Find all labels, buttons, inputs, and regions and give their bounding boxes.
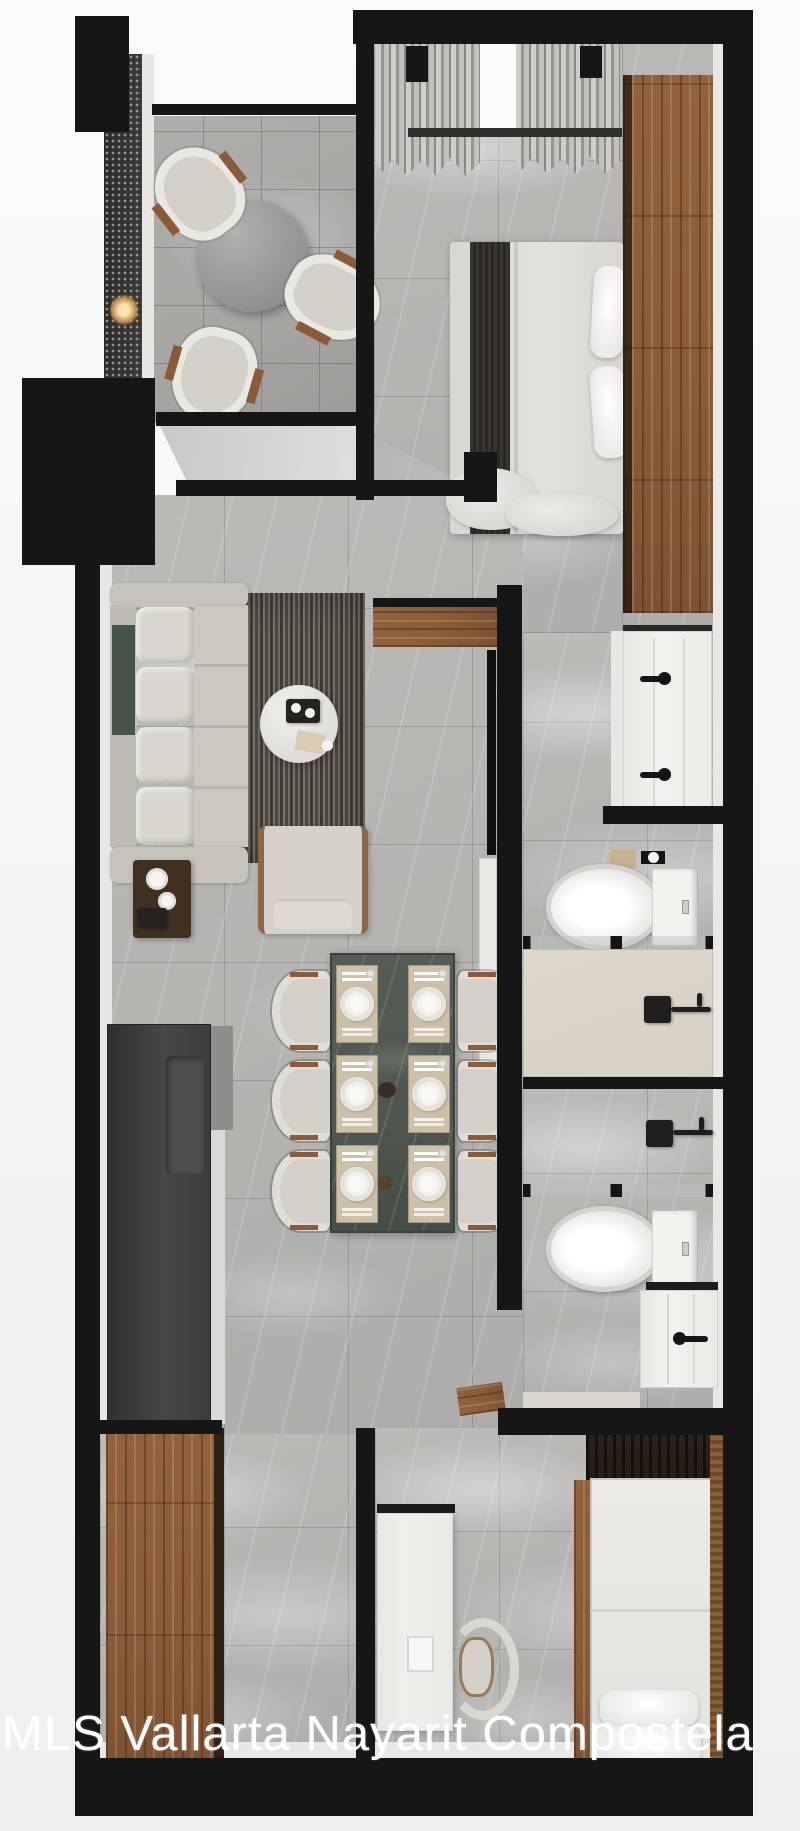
wall-tv xyxy=(487,650,496,855)
sofa-throw-blanket xyxy=(112,625,135,735)
faucet xyxy=(640,772,666,778)
cup xyxy=(305,708,315,718)
place-setting xyxy=(336,1145,378,1223)
wall-lamp xyxy=(110,294,138,326)
shower-head xyxy=(646,1120,673,1147)
wall-bathrooms-divider xyxy=(523,1077,723,1089)
wall-corridor xyxy=(497,585,522,1310)
wall-bedroom-left xyxy=(356,14,374,500)
sliding-door-frame-top xyxy=(156,412,358,426)
dining-chair xyxy=(272,1151,330,1231)
shower-valve xyxy=(699,1117,704,1131)
right-baseboard xyxy=(713,44,723,1410)
shower-arm xyxy=(673,1130,713,1135)
wall-bath1-divider xyxy=(603,806,723,824)
window-light xyxy=(480,44,516,132)
wall-closet-top xyxy=(100,1420,222,1434)
wall-bottom xyxy=(75,1758,753,1816)
sofa-back-cushion xyxy=(136,607,194,663)
counter-end-top xyxy=(211,1026,233,1130)
door-jamb xyxy=(464,452,497,502)
wall-left-mass xyxy=(22,378,155,565)
place-setting xyxy=(336,965,378,1043)
curtain-left xyxy=(376,44,480,176)
sofa xyxy=(110,583,248,883)
kitchen-sink xyxy=(166,1056,204,1174)
desk-accessory xyxy=(407,1636,434,1672)
place-setting xyxy=(408,1055,450,1133)
master-wardrobe xyxy=(623,75,713,613)
curtain-bracket xyxy=(406,46,428,82)
vanity-shadow xyxy=(646,1282,718,1290)
wall-top xyxy=(353,10,753,44)
faucet xyxy=(678,1336,708,1342)
desk xyxy=(377,1513,453,1731)
armchair xyxy=(258,826,368,934)
console-back-edge xyxy=(373,598,497,607)
shower-glass-partition xyxy=(523,1184,713,1197)
wardrobe-shadow-edge xyxy=(623,75,632,613)
bed-pillow xyxy=(590,265,627,359)
window-sill xyxy=(408,128,622,137)
coffee-table xyxy=(260,685,338,763)
curtain-right xyxy=(516,44,620,174)
wall-right-outer xyxy=(723,14,753,1815)
sofa-seat xyxy=(194,605,248,847)
shower-head xyxy=(644,996,671,1023)
place-setting xyxy=(408,1145,450,1223)
cup xyxy=(291,703,301,713)
shower-glass-partition xyxy=(523,936,713,949)
toilet xyxy=(546,1206,698,1292)
bedroom2-wardrobe xyxy=(586,1428,714,1480)
sofa-back-cushion xyxy=(136,727,194,783)
plate xyxy=(146,868,168,890)
table-centerpiece xyxy=(377,1176,393,1190)
wall-balcony-corner xyxy=(75,16,129,132)
sofa-back-cushion xyxy=(136,787,194,845)
dining-chair xyxy=(272,1061,330,1141)
dining-chair xyxy=(272,971,330,1051)
vanity-side xyxy=(611,631,623,817)
shower1-floor xyxy=(523,949,713,1077)
counter-edge xyxy=(211,1130,225,1424)
wall-left-outer xyxy=(75,565,100,1815)
shower-valve xyxy=(697,993,702,1007)
cup xyxy=(322,740,333,751)
balcony-railing xyxy=(152,104,360,115)
desk-chair xyxy=(447,1618,519,1720)
sofa-armrest xyxy=(110,583,248,607)
faucet xyxy=(640,676,666,682)
duvet-drape xyxy=(506,492,618,536)
table-centerpiece xyxy=(378,1082,396,1098)
sliding-door-frame-bottom xyxy=(176,480,466,496)
sofa-back-cushion xyxy=(136,667,194,723)
place-setting xyxy=(336,1055,378,1133)
wall-bedroom2-top xyxy=(498,1408,733,1435)
curtain-bracket xyxy=(580,46,602,78)
shower-arm xyxy=(671,1007,711,1012)
bathroom1-vanity xyxy=(623,631,712,817)
place-setting xyxy=(408,965,450,1043)
tv-console xyxy=(373,607,497,647)
desk-back-edge xyxy=(377,1504,455,1513)
watermark-text: MLS Vallarta Nayarit Compostela xyxy=(2,1706,754,1762)
toilet-paper-roll xyxy=(648,852,659,863)
render-background: MLS Vallarta Nayarit Compostela xyxy=(0,0,800,1831)
serving-tray xyxy=(137,908,167,928)
